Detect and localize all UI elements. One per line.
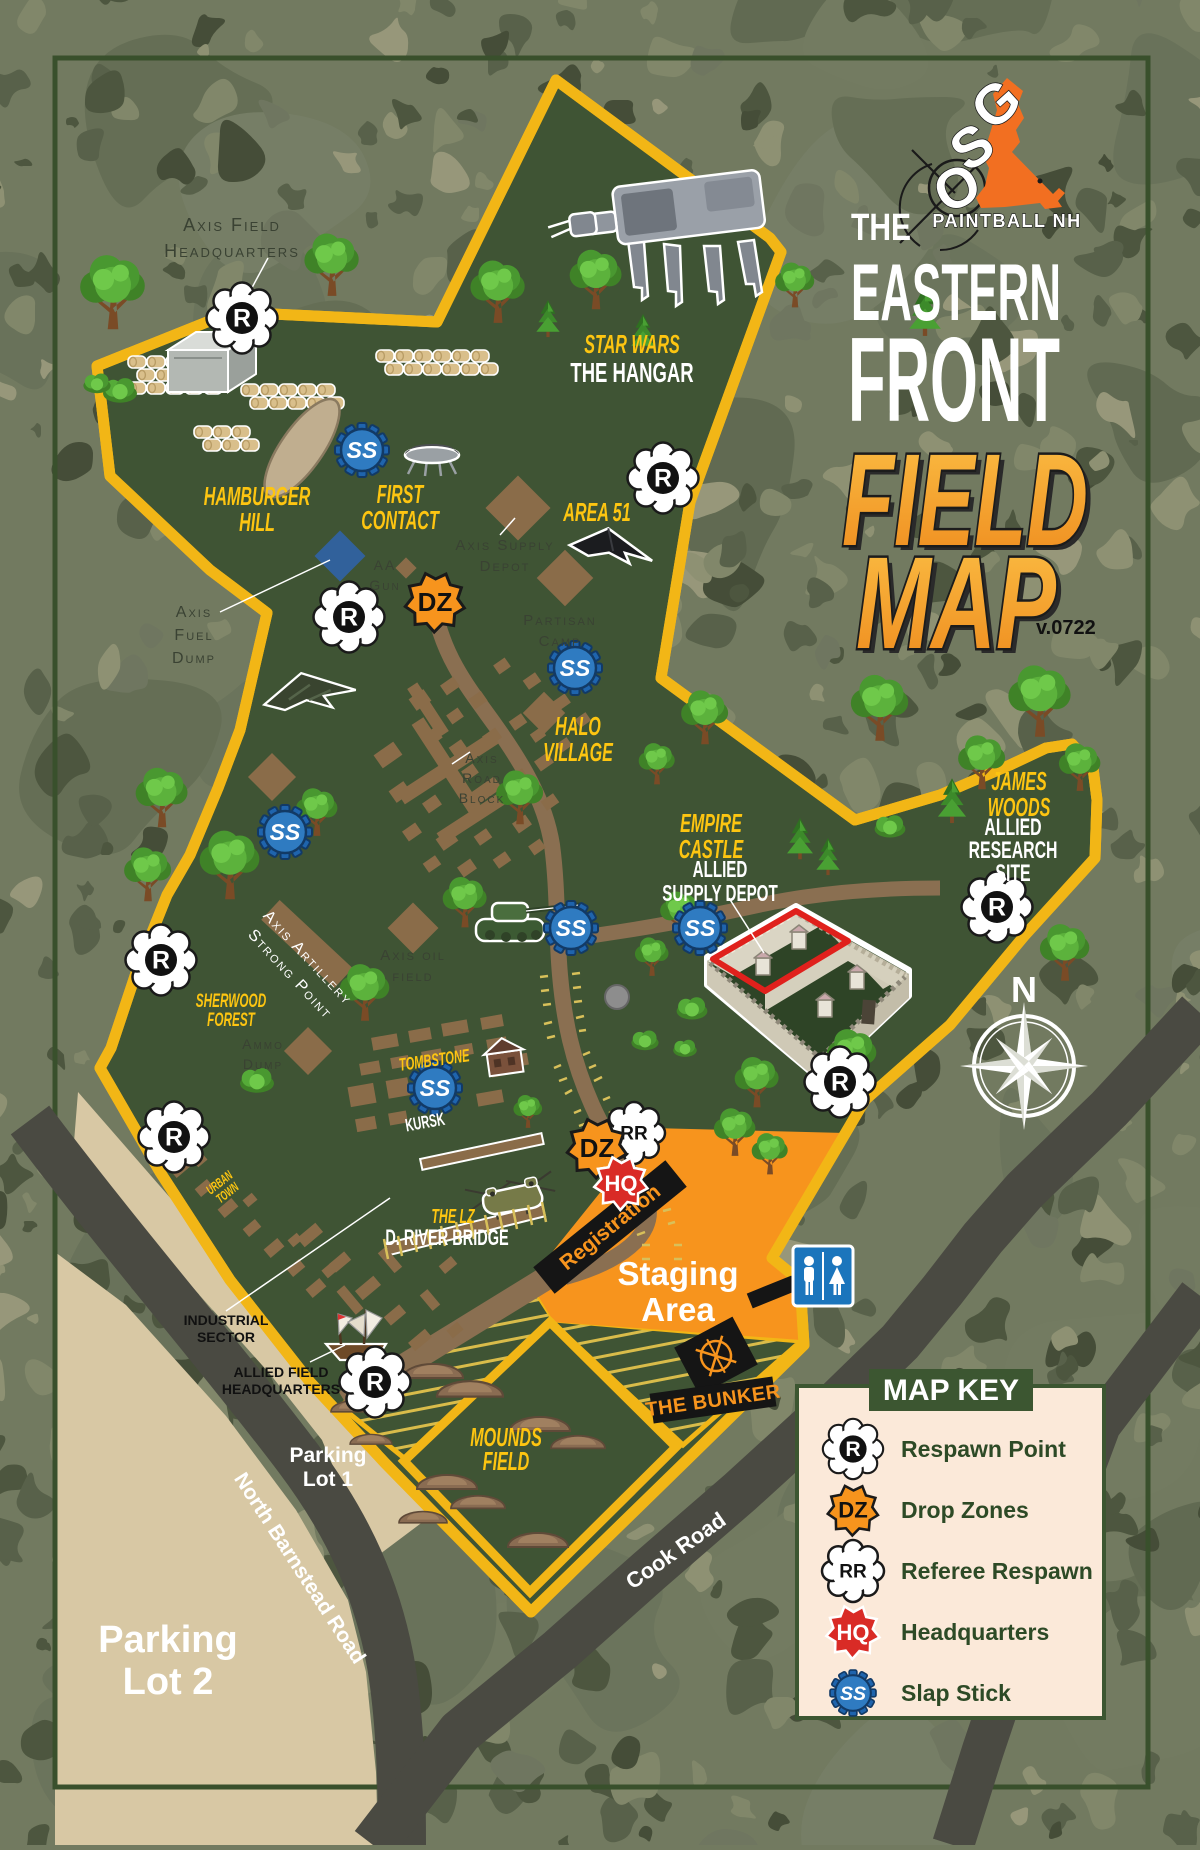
svg-text:MAP: MAP: [856, 529, 1056, 676]
svg-text:Parking: Parking: [98, 1619, 237, 1661]
svg-text:Lot 1: Lot 1: [303, 1468, 353, 1491]
svg-text:v.0722: v.0722: [1036, 617, 1096, 639]
svg-text:Axis: Axis: [465, 750, 498, 766]
svg-text:PAINTBALL NH: PAINTBALL NH: [932, 211, 1081, 231]
svg-text:MAP KEY: MAP KEY: [883, 1374, 1019, 1407]
svg-text:Axis oil: Axis oil: [380, 947, 446, 964]
svg-text:ALLIED FIELD: ALLIED FIELD: [234, 1364, 329, 1380]
svg-text:HEADQUARTERS: HEADQUARTERS: [222, 1381, 340, 1397]
svg-text:THE HANGAR: THE HANGAR: [570, 358, 693, 389]
svg-text:VILLAGE: VILLAGE: [543, 737, 613, 767]
svg-text:Partisan: Partisan: [523, 612, 596, 629]
svg-text:Axis Supply: Axis Supply: [455, 537, 554, 554]
svg-text:Headquarters: Headquarters: [164, 241, 300, 261]
svg-text:Road: Road: [462, 770, 502, 786]
svg-text:FOREST: FOREST: [207, 1010, 256, 1030]
svg-text:Camp: Camp: [539, 633, 582, 650]
svg-text:Block: Block: [459, 790, 506, 806]
svg-text:Fuel: Fuel: [174, 627, 213, 644]
svg-text:Staging: Staging: [618, 1255, 739, 1292]
svg-text:INDUSTRIAL: INDUSTRIAL: [184, 1312, 269, 1328]
svg-text:Respawn Point: Respawn Point: [901, 1436, 1066, 1462]
svg-text:Headquarters: Headquarters: [901, 1619, 1049, 1645]
svg-text:Axis: Axis: [176, 604, 212, 621]
svg-text:AA: AA: [374, 557, 397, 573]
svg-text:Parking: Parking: [289, 1444, 366, 1467]
svg-text:ALLIED: ALLIED: [693, 857, 748, 883]
svg-text:Dump: Dump: [243, 1056, 283, 1072]
svg-text:Gun: Gun: [369, 577, 400, 593]
svg-text:SECTOR: SECTOR: [197, 1329, 255, 1345]
svg-text:Area: Area: [641, 1291, 715, 1328]
svg-text:Referee Respawn: Referee Respawn: [901, 1558, 1093, 1584]
svg-text:SUPPLY DEPOT: SUPPLY DEPOT: [662, 881, 778, 907]
svg-text:FIELD: FIELD: [483, 1446, 530, 1476]
svg-text:Lot 2: Lot 2: [123, 1661, 214, 1703]
svg-text:SHERWOOD: SHERWOOD: [196, 991, 266, 1011]
svg-text:Ammo: Ammo: [242, 1036, 284, 1052]
svg-text:STAR WARS: STAR WARS: [584, 329, 680, 359]
svg-text:Depot: Depot: [480, 558, 531, 575]
svg-text:SITE: SITE: [995, 861, 1030, 887]
svg-text:THE: THE: [851, 207, 911, 249]
svg-text:D. RIVER BRIDGE: D. RIVER BRIDGE: [385, 1225, 508, 1250]
svg-text:AREA 51: AREA 51: [563, 497, 631, 527]
svg-text:Drop Zones: Drop Zones: [901, 1497, 1029, 1523]
svg-text:HILL: HILL: [239, 507, 275, 537]
svg-text:Slap Stick: Slap Stick: [901, 1680, 1011, 1706]
svg-text:Dump: Dump: [172, 650, 216, 667]
svg-text:CONTACT: CONTACT: [361, 505, 440, 535]
svg-text:Axis Field: Axis Field: [183, 215, 281, 235]
svg-text:field: field: [392, 968, 433, 985]
